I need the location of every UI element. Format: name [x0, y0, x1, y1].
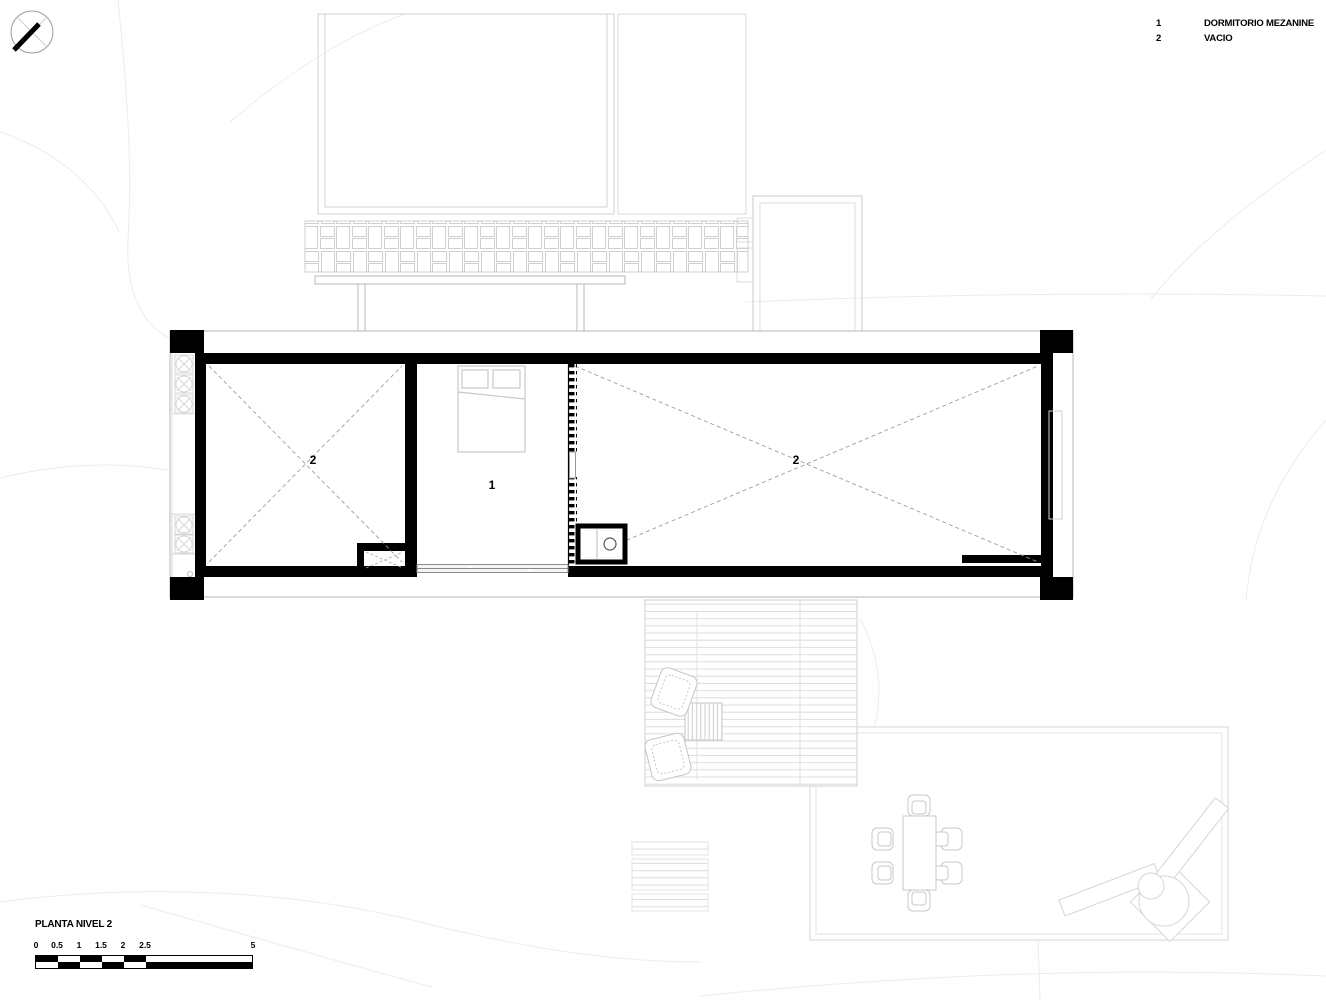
- corner-column-top-right: [1040, 330, 1073, 353]
- breeze-block-band: [305, 221, 748, 272]
- scale-tick-label: 0.5: [51, 940, 63, 950]
- room-label-bedroom: 1: [489, 478, 496, 492]
- washbasin: [578, 526, 625, 562]
- garden-steps: [632, 842, 708, 911]
- upper-right-structure: [753, 196, 862, 332]
- deck-side-table: [685, 703, 722, 740]
- wall-bottom-left-segment: [205, 566, 417, 577]
- room-label-left-void: 2: [310, 453, 317, 467]
- corner-column-top-left: [170, 330, 204, 353]
- wall-partial-right: [962, 555, 1041, 563]
- legend-label: DORMITORIO MEZANINE: [1204, 16, 1314, 31]
- legend-label: VACIO: [1204, 31, 1232, 46]
- scale-tick-label: 2: [121, 940, 126, 950]
- scale-tick-label: 1.5: [95, 940, 107, 950]
- scale-bar-labels: 0 0.5 1 1.5 2 2.5 5: [0, 940, 1326, 952]
- plan-title: PLANTA NIVEL 2: [35, 919, 112, 930]
- wall-top: [205, 353, 1041, 364]
- floor-plan-canvas: 2 1 2: [0, 0, 1326, 1000]
- screen-opening: [570, 452, 576, 478]
- scale-tick-label: 2.5: [139, 940, 151, 950]
- corner-column-bottom-right: [1040, 577, 1073, 600]
- scale-tick-label: 5: [251, 940, 256, 950]
- wall-right: [1041, 353, 1053, 577]
- scale-tick-label: 0: [34, 940, 39, 950]
- legend-row: 1 DORMITORIO MEZANINE: [1156, 16, 1314, 31]
- corner-column-bottom-left: [170, 577, 204, 600]
- dining-table: [903, 816, 936, 890]
- scale-bar: [35, 955, 253, 969]
- legend-number: 1: [1156, 16, 1204, 31]
- wall-bottom-right-segment: [568, 566, 1041, 577]
- wall-left: [195, 353, 206, 577]
- legend-row: 2 VACIO: [1156, 31, 1314, 46]
- terrace: [810, 727, 1229, 942]
- wall-niche-left: [357, 543, 364, 577]
- legend: 1 DORMITORIO MEZANINE 2 VACIO: [1156, 16, 1314, 46]
- drawing-sheet: 2 1 2 1 DORMITORIO MEZANINE 2 VACIO PLAN…: [0, 0, 1326, 1000]
- sliding-door: [417, 565, 568, 573]
- legend-number: 2: [1156, 31, 1204, 46]
- north-arrow-icon: [11, 11, 53, 53]
- scale-tick-label: 1: [77, 940, 82, 950]
- room-label-right-void: 2: [793, 453, 800, 467]
- deck: [644, 600, 857, 786]
